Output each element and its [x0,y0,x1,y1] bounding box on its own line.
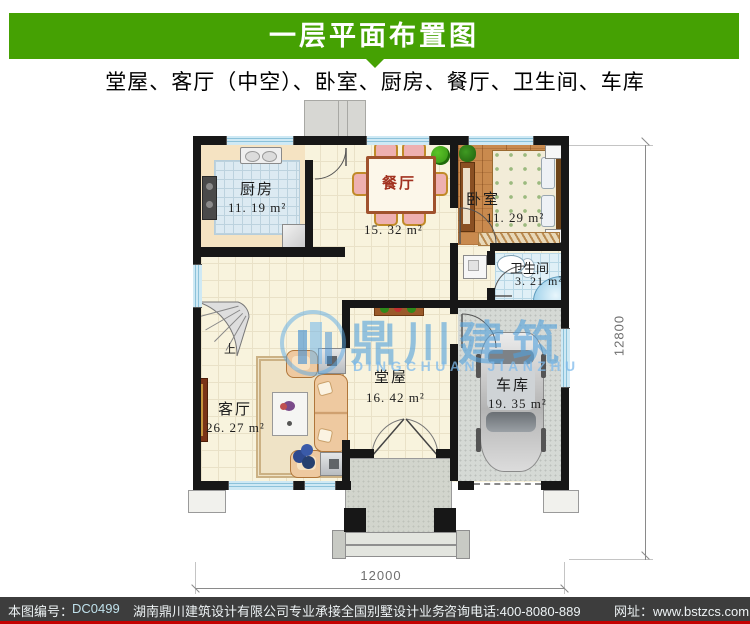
sink-basin [245,151,260,162]
bed-pillow [541,157,555,189]
kitchen-fridge [282,224,307,249]
bedroom-area: 11. 29 m² [486,210,544,226]
armchair-cushion [292,356,310,370]
bathroom-area: 3. 21 m² [515,274,563,289]
decor-dot [287,421,292,426]
stairs-up-label: 上 [224,340,238,357]
staircase [196,296,258,368]
garage-door-arc [460,312,498,350]
washing-machine [463,255,487,279]
living-area: 26. 27 m² [206,420,265,436]
subtitle: 堂屋、客厅（中空）、卧室、厨房、餐厅、卫生间、车库 [0,66,750,96]
footer-phone: 咨询电话:400-8080-889 [444,601,581,620]
plant-leaf [301,444,313,456]
wall-bath-left-top [487,251,495,265]
wall-bottom-garage-left [458,481,474,490]
window-stairs [193,264,202,308]
footer-bar: 本图编号： DC0499 湖南鼎川建筑设计有限公司专业承接全国别墅设计业务 咨询… [0,597,750,621]
wall-right [561,136,569,490]
table-lamp [329,459,339,469]
burner [206,183,213,190]
sink-basin [262,151,277,162]
armchair [286,350,318,378]
kitchen-sink [240,147,282,164]
kitchen-label: 厨房 [240,178,274,199]
wall-v450 [450,243,458,308]
porch-step [332,545,470,557]
porch-step-post [456,530,470,559]
kitchen-door-arc [313,146,349,182]
hall-area: 16. 42 m² [366,390,425,406]
living-label: 客厅 [218,398,252,419]
extension-line [569,559,653,560]
page-title: 一层平面布置图 [9,13,739,59]
wall-bath-left-bottom [487,288,495,300]
bedroom-plant-icon [459,145,476,162]
entrance-double-doors [366,412,444,458]
footer-drawing-no-label: 本图编号： [8,601,73,620]
side-step [188,490,226,513]
floor-plant [293,444,315,470]
side-step [543,490,579,513]
garage-area: 19. 35 m² [488,396,547,412]
dining-room-label: 餐厅 [382,172,416,193]
car-windshield [486,412,536,432]
car-wheel [541,354,546,378]
porch-column [434,508,456,532]
throw-pillow [317,428,333,444]
burner [206,201,213,208]
floor-plan-page: 一层平面布置图 堂屋、客厅（中空）、卧室、厨房、餐厅、卫生间、车库 [0,0,750,624]
washer-door [468,260,479,271]
dimension-line-bottom [196,588,565,589]
plant-leaf [302,456,315,469]
coffee-table [272,392,308,436]
car-wheel [541,428,546,452]
wall-bedroom-bottom [490,243,569,251]
wall-garage-left-top [450,308,458,314]
wall-bottom-garage-right [541,481,569,490]
dimension-bottom-value: 12000 [336,568,426,583]
wall-kitchen-right [305,160,313,247]
window-kitchen [226,136,294,145]
chimney-line [338,100,339,137]
kitchen-area: 11. 19 m² [228,200,286,216]
chimney-line [347,100,348,137]
wall-hall-left-top [342,300,350,348]
garage-label: 车库 [496,374,530,395]
bedroom-label: 卧室 [466,188,500,209]
hall-label: 堂屋 [374,366,408,387]
car-wheel [476,428,481,452]
kitchen-stove [202,176,217,220]
throw-pillow [317,380,334,396]
side-table [318,348,346,374]
window-living-2 [304,481,336,490]
wall-dining-bedroom [450,144,458,208]
window-living-1 [228,481,294,490]
porch-step-post [332,530,346,559]
decor-flower [280,403,287,410]
footer-drawing-no-value: DC0499 [72,601,120,616]
car-rear-window [488,350,534,364]
window-garage [561,328,570,388]
nightstand [545,145,562,159]
footer-website: 网址：www.bstzcs.com [614,601,749,620]
porch-column [344,508,366,532]
extension-line [569,145,653,146]
car-wheel [476,354,481,378]
wall-mid-horizontal [342,300,569,308]
dimension-line-right [645,145,646,560]
wall-garage-left-bottom [450,344,458,481]
window-dining [366,136,430,145]
wall-kitchen-bottom [193,247,345,257]
dining-room-area: 15. 32 m² [364,222,423,238]
wall-left [193,136,201,490]
porch-step [332,532,470,545]
dimension-right-value: 12800 [612,312,627,360]
table-lamp [327,356,337,366]
footer-company: 湖南鼎川建筑设计有限公司专业承接全国别墅设计业务 [133,601,445,620]
chimney [304,100,366,139]
garage-door-dashed [474,483,541,485]
window-bedroom [468,136,534,145]
wall-hall-left-bottom [342,440,350,490]
